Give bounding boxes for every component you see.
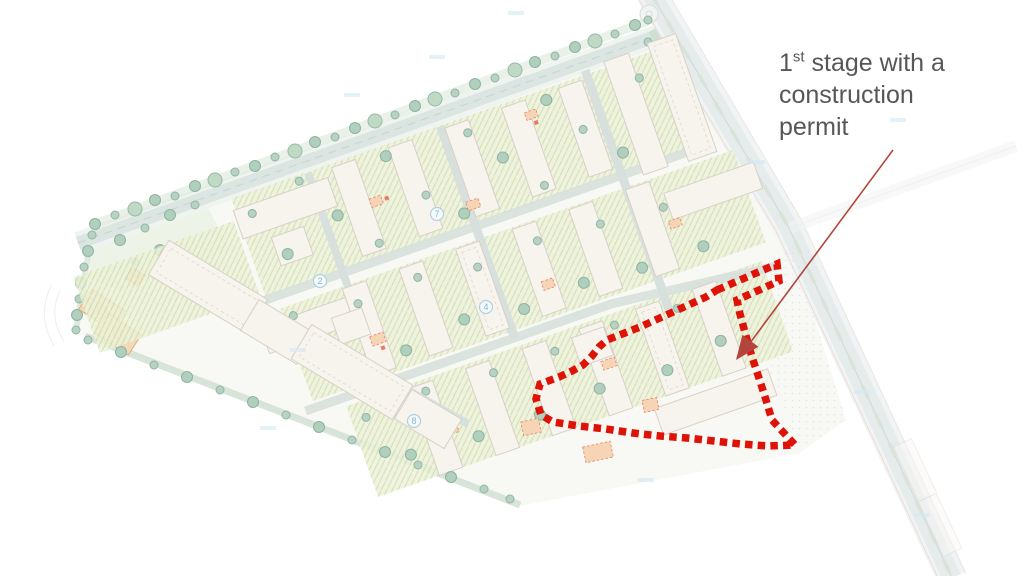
annotation-line-1: 1st stage with a [779,47,1019,79]
ordinal-suffix: st [793,49,805,66]
svg-text:4: 4 [483,302,488,312]
slide-canvas: 2 7 4 8 1st stage with a construction pe… [0,0,1024,576]
annotation-label: 1st stage with a construction permit [779,47,1019,143]
annotation-line-3: permit [779,111,1019,143]
svg-text:8: 8 [411,416,416,426]
svg-text:7: 7 [434,209,439,219]
annotation-line-2: construction [779,79,1019,111]
svg-text:2: 2 [317,276,322,286]
